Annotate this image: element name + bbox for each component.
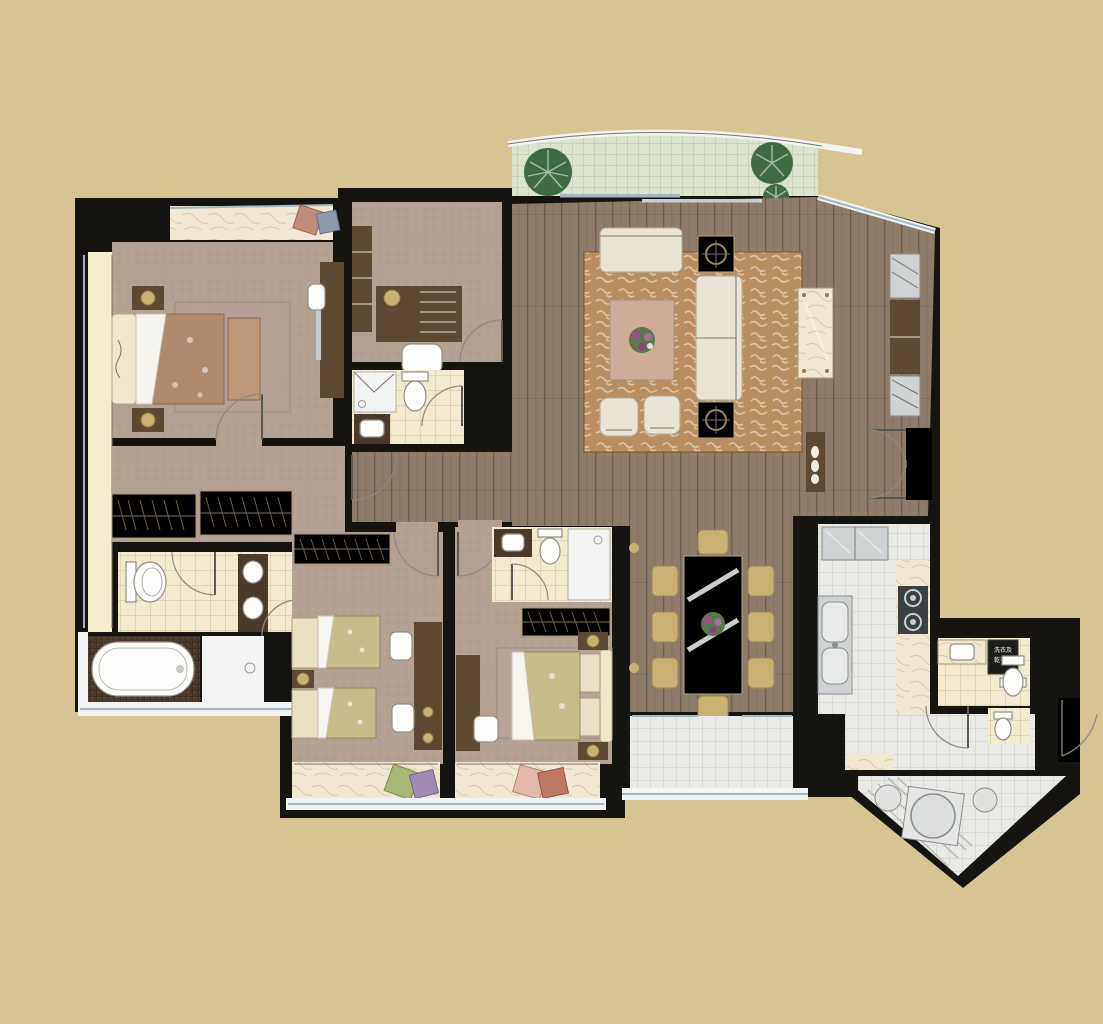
nightstand-top xyxy=(578,632,608,650)
room-walk-in-closet xyxy=(112,446,345,542)
room-study xyxy=(352,202,502,374)
wardrobe xyxy=(200,491,292,535)
coffee-table-flowers xyxy=(629,327,655,353)
bench xyxy=(308,284,325,310)
study-desk xyxy=(376,286,462,342)
nightstand-top xyxy=(132,286,164,310)
kids-chair xyxy=(392,704,414,732)
entry-threshold xyxy=(906,428,932,500)
dining-chair xyxy=(652,658,678,688)
utility-sink-counter xyxy=(938,640,986,664)
toilet xyxy=(402,372,428,411)
kids-bed-1 xyxy=(292,616,380,668)
dining-chair xyxy=(698,530,728,554)
washer-label-line1: 洗衣及 xyxy=(994,646,1012,654)
west-bay-window-seat xyxy=(88,252,112,632)
room-study-bathroom xyxy=(352,370,464,444)
toilet-small xyxy=(994,712,1012,740)
vanity xyxy=(354,414,390,444)
washing-machine xyxy=(902,786,965,845)
toilet xyxy=(538,529,562,564)
kids-nightstand xyxy=(292,670,314,688)
tub-faucet xyxy=(176,665,184,673)
desk-chair xyxy=(402,344,442,374)
room-dining-terrace xyxy=(622,716,808,800)
bookshelf xyxy=(352,226,372,332)
dining-chair xyxy=(748,658,774,688)
room-second-bathroom xyxy=(492,527,612,602)
floor-plan-svg: 洗衣及 乾衣機 xyxy=(0,0,1103,1024)
service-threshold xyxy=(848,754,893,770)
master-tv-console xyxy=(316,262,344,398)
basin xyxy=(973,788,997,812)
wall-sconce xyxy=(629,663,639,673)
nightstand-bottom xyxy=(132,408,164,432)
headboard xyxy=(600,650,612,742)
dining-chair xyxy=(748,566,774,596)
floor-plan-canvas: 洗衣及 乾衣機 xyxy=(0,0,1103,1024)
console-table xyxy=(798,288,833,378)
room-kids-bedroom xyxy=(292,522,443,764)
sofa-chaise xyxy=(600,228,682,272)
headboard xyxy=(112,314,136,404)
wardrobe xyxy=(522,608,610,636)
kids-door-gap xyxy=(396,522,438,534)
basin xyxy=(875,785,901,811)
master-bed xyxy=(112,314,260,404)
dining-centerpiece xyxy=(701,612,725,636)
dining-chair xyxy=(748,612,774,642)
kitchen-counter xyxy=(896,560,930,714)
corridor-floor xyxy=(352,452,512,522)
bay-cushion xyxy=(409,769,438,798)
kids-chair xyxy=(390,632,412,660)
living-wall-cabinets xyxy=(890,254,920,416)
bay-cushion xyxy=(538,768,569,799)
double-vanity xyxy=(238,554,268,632)
nightstand-bottom xyxy=(578,742,608,760)
balcony-plant-left xyxy=(524,148,572,196)
room-corridor xyxy=(352,452,512,522)
side-table-bottom xyxy=(698,402,734,438)
refrigerator xyxy=(822,527,888,560)
room-second-bedroom xyxy=(455,520,612,764)
kids-bed-2 xyxy=(292,688,376,738)
vanity xyxy=(494,529,532,557)
dining-chair xyxy=(652,566,678,596)
wardrobe xyxy=(294,534,390,564)
kitchen-sink xyxy=(818,596,852,694)
kids-desk xyxy=(414,622,442,750)
dining-chair xyxy=(652,612,678,642)
foot-bench xyxy=(228,318,260,400)
wardrobe xyxy=(112,494,196,538)
balcony-slider-door xyxy=(560,194,680,198)
shower xyxy=(568,529,610,600)
side-table-top xyxy=(698,236,734,272)
bedroom2-chair xyxy=(474,716,498,742)
wall-sconce xyxy=(629,543,639,553)
bay-cushion xyxy=(316,210,340,234)
toilet xyxy=(126,562,166,602)
shoe-cabinet xyxy=(806,432,825,492)
cooktop xyxy=(898,586,928,634)
shower xyxy=(354,372,396,412)
terrace-floor xyxy=(630,716,793,788)
